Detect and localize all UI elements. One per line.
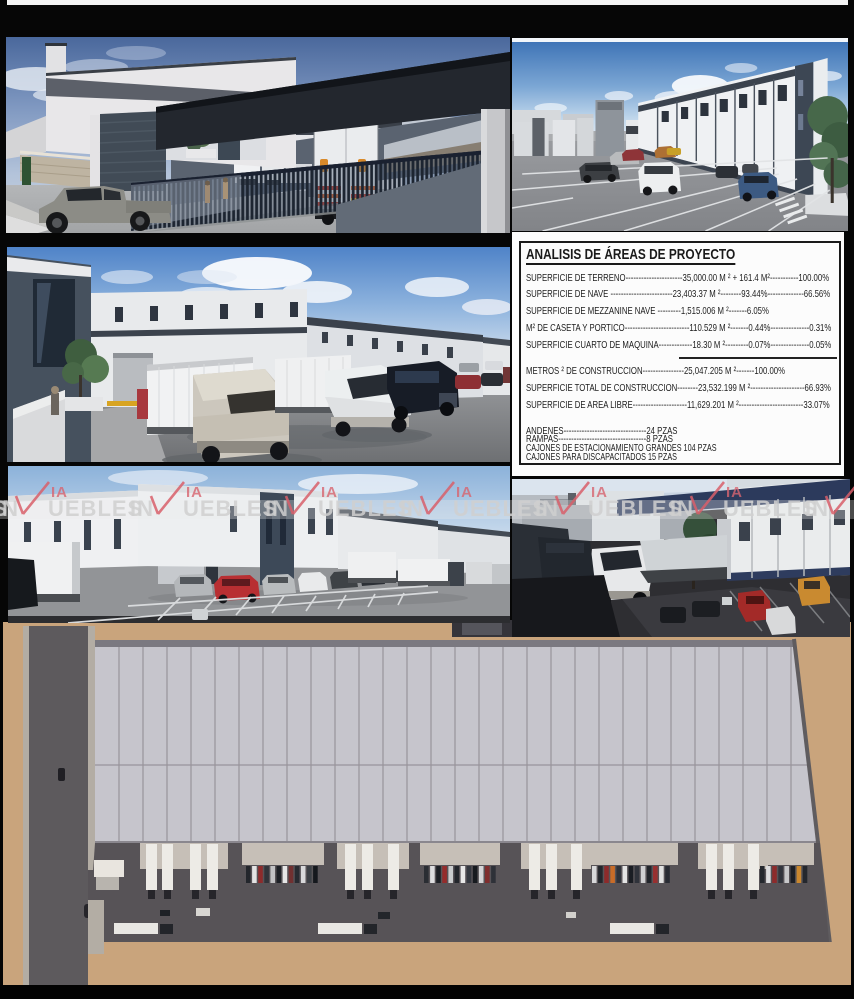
svg-text:UEBLES: UEBLES bbox=[318, 496, 413, 521]
svg-text:UEBLES: UEBLES bbox=[588, 496, 683, 521]
svg-text:IN: IN bbox=[265, 496, 289, 521]
svg-text:UEBLES: UEBLES bbox=[48, 496, 143, 521]
svg-text:UEBLES: UEBLES bbox=[183, 496, 278, 521]
svg-text:IN: IN bbox=[0, 496, 19, 521]
svg-text:IN: IN bbox=[670, 496, 694, 521]
svg-text:IN: IN bbox=[130, 496, 154, 521]
svg-text:IN: IN bbox=[535, 496, 559, 521]
svg-text:UEBLES: UEBLES bbox=[723, 496, 818, 521]
svg-text:UEBLES: UEBLES bbox=[453, 496, 548, 521]
svg-text:IN: IN bbox=[400, 496, 424, 521]
svg-text:IN: IN bbox=[805, 496, 829, 521]
